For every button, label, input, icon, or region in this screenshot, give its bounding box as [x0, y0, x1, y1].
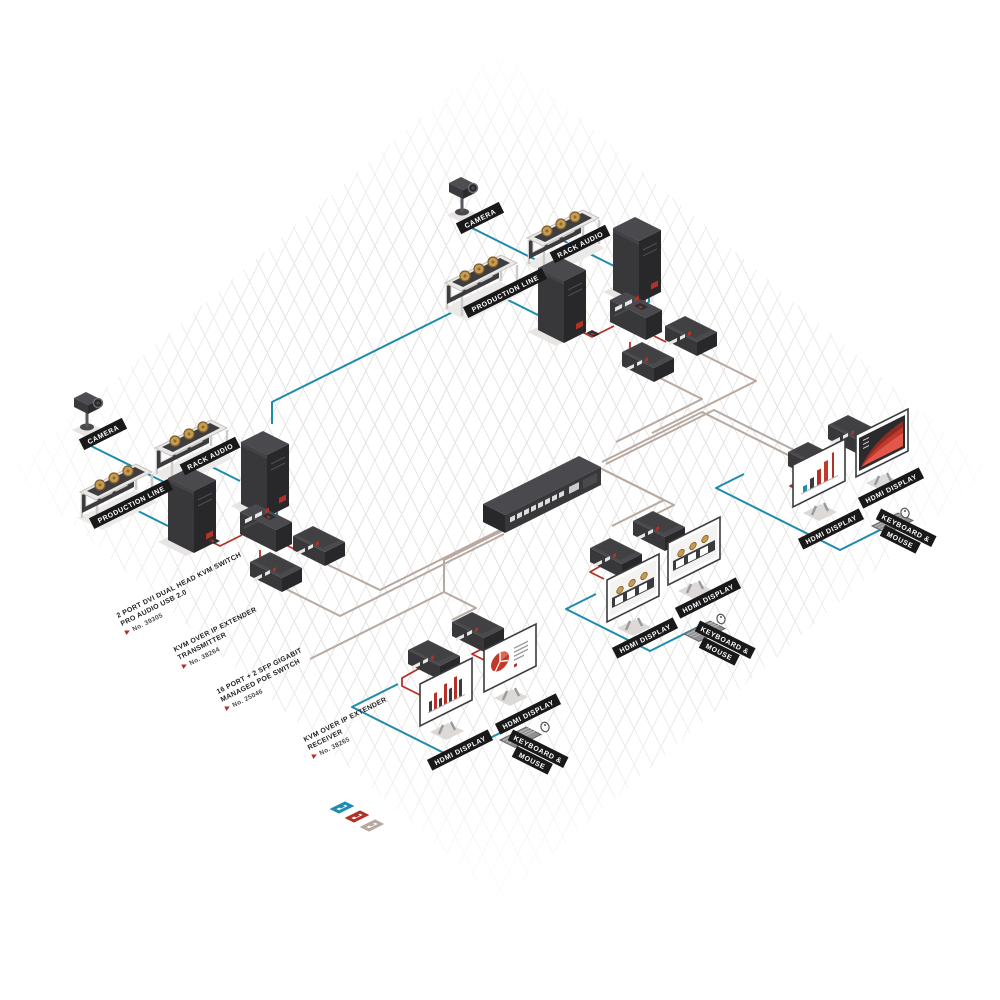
cluster-left-sources — [72, 392, 345, 592]
isometric-diagram-canvas: CAMERA RACK AUDIO PRODUCTION LINE CAMERA… — [0, 0, 1000, 1000]
legend-swatch-network — [363, 821, 381, 830]
cable-legend — [333, 803, 381, 830]
ip-extender-transmitter — [665, 316, 717, 356]
kvm-switch-device — [610, 292, 662, 340]
callout-ip-transmitter: KVM OVER IP EXTENDER TRANSMITTER No. 382… — [173, 606, 267, 670]
poe-network-switch — [483, 456, 601, 533]
cluster-top-sources — [443, 177, 717, 382]
kvm-switch-device — [240, 504, 292, 552]
svg-text:2 PORT DVI DUAL HEAD KVM SWITC: 2 PORT DVI DUAL HEAD KVM SWITCH — [116, 552, 243, 620]
diagram-svg: CAMERA RACK AUDIO PRODUCTION LINE CAMERA… — [0, 0, 1000, 1000]
device-shadows — [158, 276, 663, 556]
mouse — [716, 613, 727, 625]
svg-text:HDMI DISPLAY: HDMI DISPLAY — [805, 515, 859, 547]
label-hdmi-display: HDMI DISPLAY — [858, 467, 924, 508]
cluster-bottom-workplace — [408, 612, 550, 748]
mouse — [540, 721, 551, 733]
server-tower — [538, 257, 586, 343]
callout-poe-switch: 16 PORT + 2 SFP GIGABIT MANAGED POE SWIT… — [216, 647, 313, 713]
ip-extender-transmitter — [293, 526, 345, 566]
cluster-midright-workplace — [590, 511, 726, 642]
callout-ip-receiver: KVM OVER IP EXTENDER RECEIVER No. 38265 — [303, 696, 397, 760]
legend-swatch-video — [348, 812, 366, 821]
legend-swatch-usb — [333, 803, 351, 812]
label-hdmi-display: HDMI DISPLAY — [675, 577, 741, 618]
server-tower — [613, 217, 661, 303]
server-tower — [241, 431, 289, 517]
ip-extender-transmitter — [250, 552, 302, 592]
